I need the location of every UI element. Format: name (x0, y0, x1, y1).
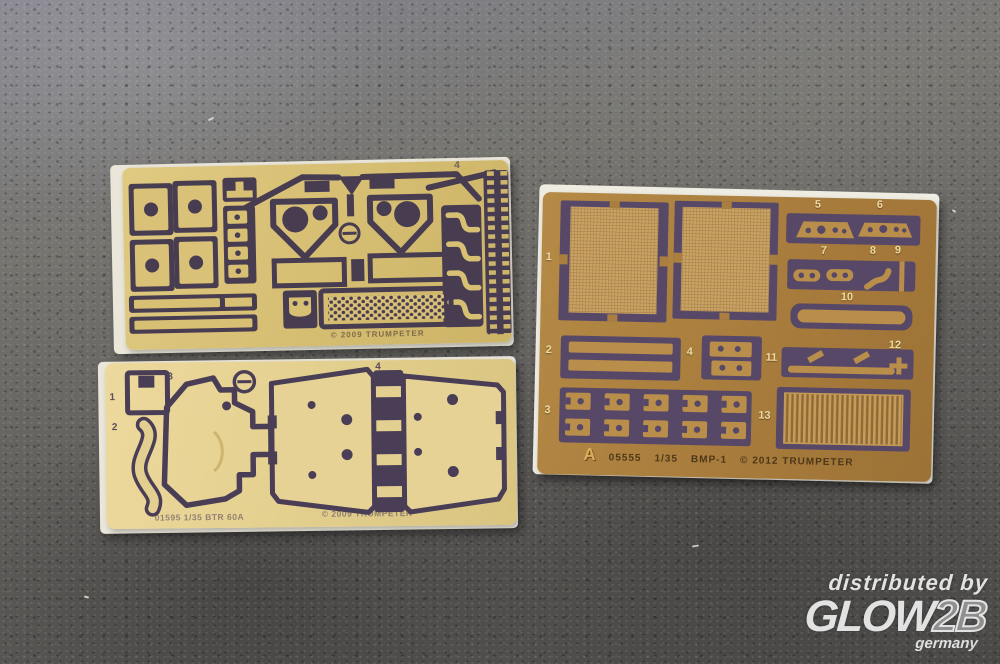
part-number-label: 1 (546, 252, 552, 263)
kit-scale: 1/35 (654, 453, 678, 464)
part-number-label: 8 (870, 246, 876, 257)
photo-scene: 4 © 2009 TRUMPETER (0, 0, 1000, 664)
sheet-c-copyright-text: © 2012 TRUMPETER (740, 455, 854, 468)
part-number-label: 9 (895, 245, 901, 256)
part-number-label: 2 (112, 423, 118, 433)
glow2b-logo: GLOW2B (803, 596, 987, 638)
pe-sheet-bottom-left: 1 2 3 4 01595 1/35 BTR 60A © 2009 TRUMPE… (105, 359, 517, 529)
part-number-label: 13 (758, 410, 770, 421)
part-number-label: 4 (454, 161, 460, 171)
part-number-label: 2 (546, 345, 552, 356)
part-number-label: 12 (889, 340, 901, 351)
fret-letter: A (583, 445, 596, 465)
sheet-a-etched-parts-graphic (122, 160, 512, 350)
part-number-label: 1 (109, 393, 115, 403)
part-number-label: 3 (167, 372, 173, 382)
sheet-c-etched-parts-graphic (537, 192, 937, 482)
sheet-b-kit-code-text: 01595 1/35 BTR 60A (155, 512, 244, 523)
part-number-label: 10 (841, 292, 853, 303)
part-number-label: 11 (765, 353, 777, 364)
pe-sheet-right: 1 2 3 4 5 6 7 8 9 10 11 12 13 A 05555 1/… (537, 192, 937, 482)
distributor-watermark: distributed by GLOW2B germany (802, 570, 989, 652)
brand-suffix-text: 2B (932, 592, 988, 641)
part-number-label: 5 (815, 200, 821, 211)
kit-number: 05555 (609, 452, 642, 464)
pe-sheet-top-left: 4 © 2009 TRUMPETER (122, 160, 512, 350)
brand-main-text: GLOW (803, 592, 935, 641)
sheet-b-copyright-text: © 2009 TRUMPETER (322, 508, 413, 519)
part-number-label: 4 (375, 362, 381, 372)
sheet-b-etched-parts-graphic (105, 359, 517, 529)
part-number-label: 4 (687, 347, 693, 358)
part-number-label: 6 (877, 200, 883, 211)
part-number-label: 3 (544, 405, 550, 416)
part-number-label: 7 (821, 246, 827, 257)
kit-name: BMP-1 (691, 454, 727, 466)
